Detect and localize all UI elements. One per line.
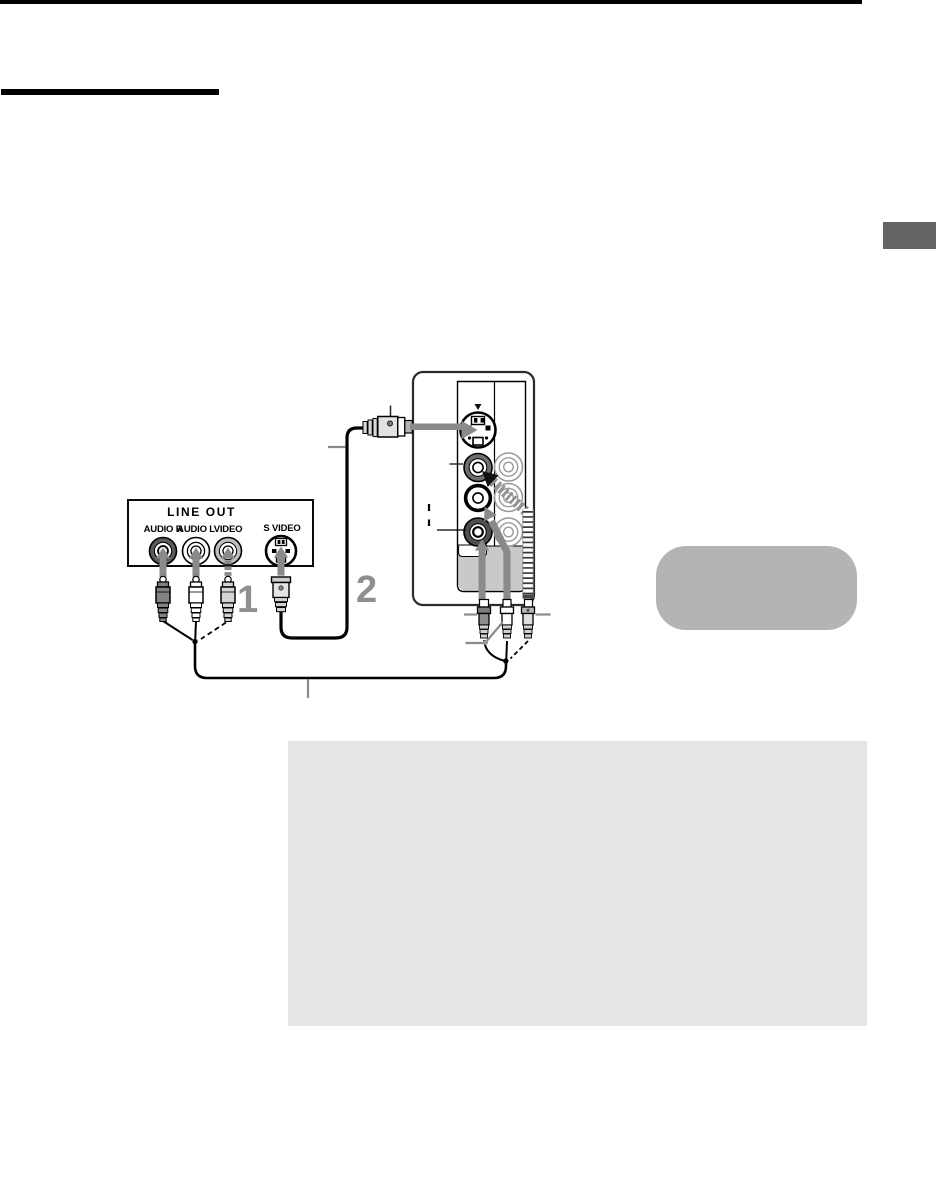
line-out-title: LINE OUT (146, 505, 257, 519)
panel-callout-lines (429, 464, 466, 530)
s-video-in-jack (461, 413, 496, 448)
s-video-plug-vertical (272, 577, 291, 612)
panel-recess-gray (459, 546, 525, 590)
cable-notch (459, 545, 487, 557)
audio-r-in-jack (464, 518, 492, 546)
jack-label-video: VIDEO (198, 524, 258, 535)
rca-plug-video (221, 576, 235, 621)
insert-arrow-bent (484, 507, 511, 601)
jack-marker-triangle (475, 404, 482, 410)
audio-video-cable (163, 621, 528, 678)
rca-plug-audio-l (189, 576, 203, 621)
step-1-label: 1 (237, 581, 258, 619)
rear-panel (413, 372, 534, 607)
callout-lines-bottom (464, 615, 551, 644)
jack-label-s-video: S VIDEO (252, 523, 312, 534)
step-2-label: 2 (356, 571, 377, 609)
note-box (288, 741, 867, 1026)
rca-plug-small-audio-l (501, 607, 514, 638)
video-in-jack (464, 454, 492, 482)
title-rule (1, 89, 219, 95)
insert-arrow-up (475, 540, 489, 602)
rca-plug-audio-r (156, 576, 170, 621)
tip-box (656, 546, 857, 630)
insert-arrow-right (410, 421, 478, 439)
jack-plate (458, 382, 526, 592)
coiled-cable (482, 471, 533, 599)
rca-jack-light-column (495, 453, 523, 546)
page-edge-tab (883, 222, 936, 249)
rca-plug-small-audio-r (522, 607, 535, 638)
s-video-plug-horizontal (363, 406, 412, 438)
manual-page: LINE OUT AUDIO R AUDIO L VIDEO S VIDEO 1… (0, 0, 936, 1177)
rca-plug-small-video (478, 607, 491, 638)
audio-l-in-jack (466, 486, 491, 511)
plug-tips (480, 600, 533, 608)
callout-elbow-dot (483, 640, 488, 645)
top-bar (0, 0, 862, 4)
